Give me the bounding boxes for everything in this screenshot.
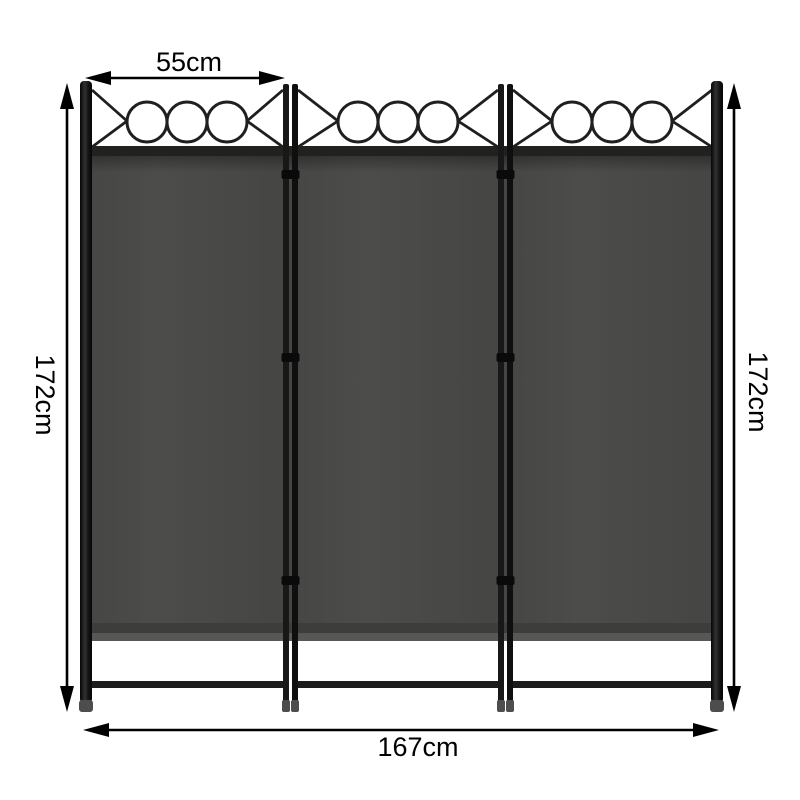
decor-circle: [632, 102, 672, 142]
post-foot: [291, 700, 299, 712]
decor-circle: [127, 102, 167, 142]
decor-circle: [552, 102, 592, 142]
leg-crossbars: [92, 681, 711, 688]
hinge-knob: [497, 170, 515, 179]
fabric-panels: [86, 146, 719, 641]
frame-post-right: [711, 81, 723, 703]
decor-circle: [167, 102, 207, 142]
fabric-panel-3: [506, 147, 719, 641]
fabric-top-shadow: [86, 156, 719, 172]
fabric-bottom-band: [86, 623, 719, 633]
fabric-panel-2: [292, 147, 506, 641]
post-foot: [497, 700, 505, 712]
leg-crossbar: [513, 681, 711, 688]
hinge-knob: [497, 353, 515, 362]
hinge-knob: [497, 576, 515, 585]
hinge-knob: [282, 576, 300, 585]
decor-circle: [207, 102, 247, 142]
leg-crossbar: [92, 681, 283, 688]
room-divider-drawing: 55cm 172cm 172cm 167cm: [0, 0, 800, 800]
dimension-label-panel-width: 55cm: [156, 47, 222, 77]
decor-circle: [378, 102, 418, 142]
product-dimension-diagram: 55cm 172cm 172cm 167cm: [0, 0, 800, 800]
post-foot: [506, 700, 514, 712]
hinge-knob: [282, 353, 300, 362]
decor-circle: [338, 102, 378, 142]
post-foot: [282, 700, 290, 712]
hinge-knob: [282, 170, 300, 179]
decor-circle: [592, 102, 632, 142]
frame-post-left: [80, 81, 92, 703]
leg-crossbar: [298, 681, 498, 688]
fabric-top-rail: [86, 146, 719, 156]
dimension-label-height-right: 172cm: [743, 351, 773, 432]
dimension-label-height-left: 172cm: [30, 354, 60, 435]
post-foot: [710, 700, 724, 712]
decor-circle: [418, 102, 458, 142]
fabric-bottom-rail-highlight: [86, 633, 719, 641]
post-foot: [79, 700, 93, 712]
dimension-label-total-width: 167cm: [377, 732, 458, 762]
fabric-panel-1: [86, 147, 292, 641]
